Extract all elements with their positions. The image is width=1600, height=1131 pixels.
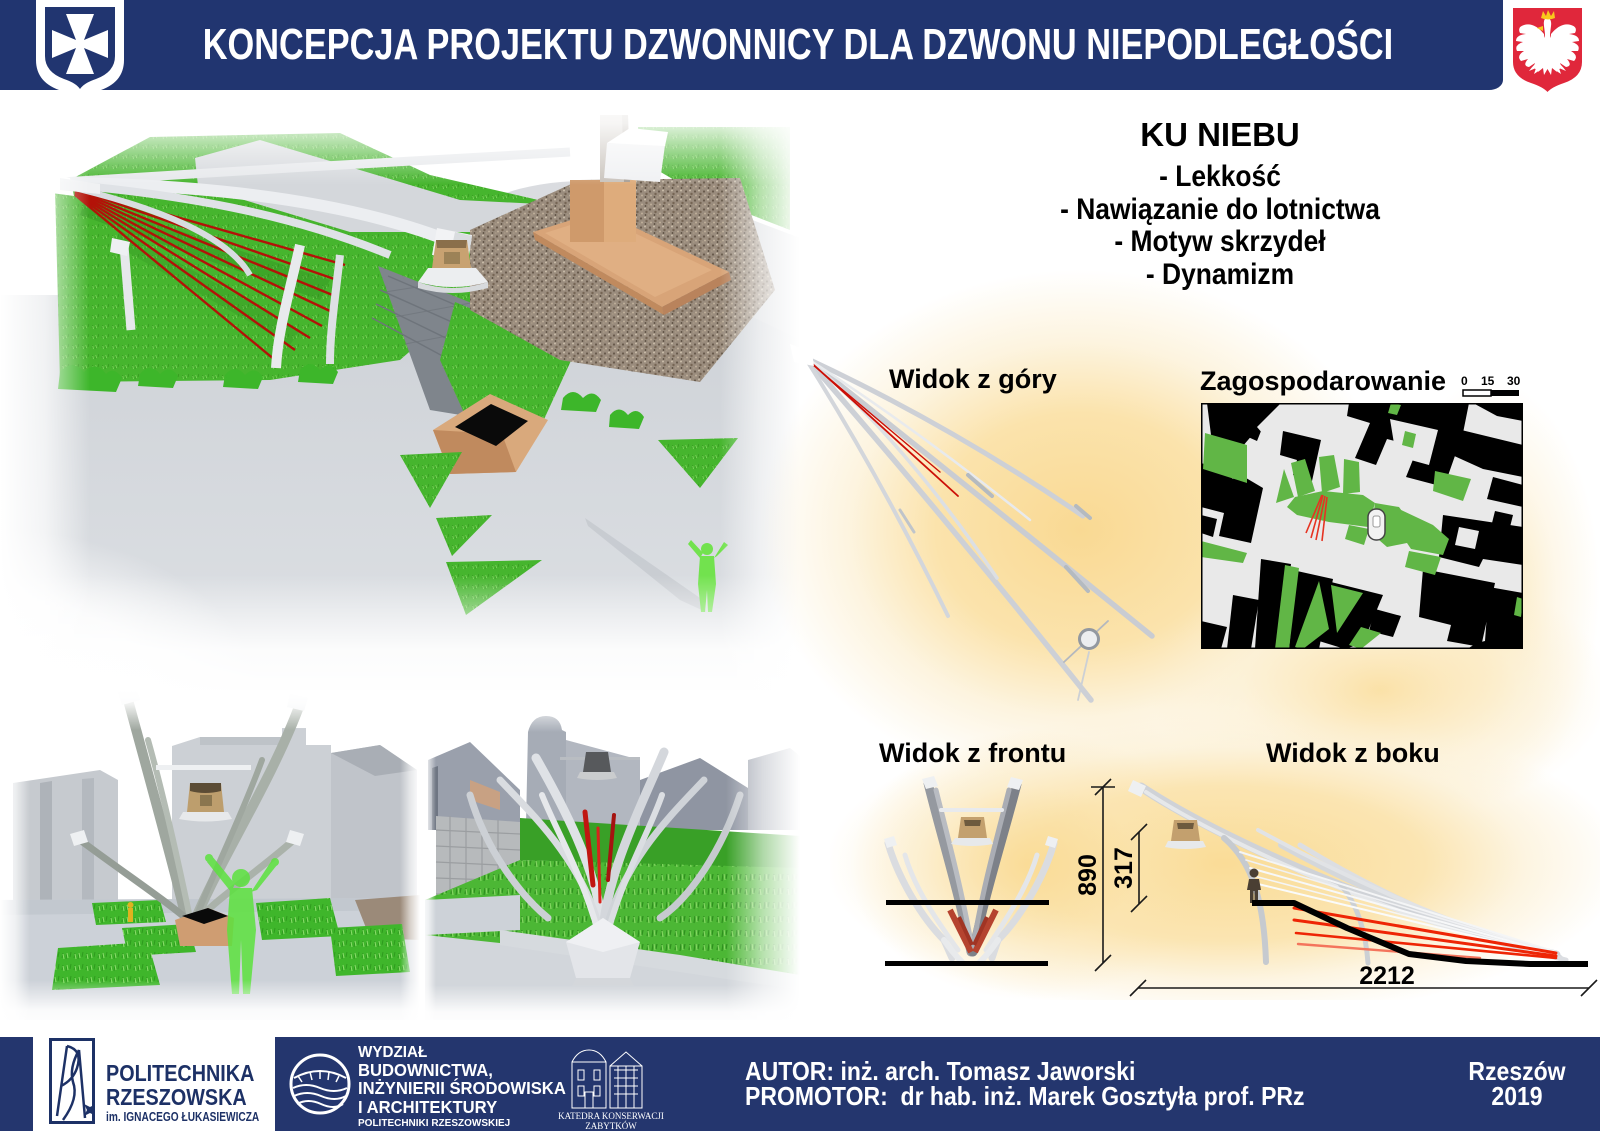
svg-text:15: 15 <box>1481 375 1495 388</box>
svg-text:0: 0 <box>1461 375 1468 388</box>
svg-text:2212: 2212 <box>1359 962 1415 990</box>
svg-text:30: 30 <box>1507 375 1521 388</box>
svg-text:890: 890 <box>1074 854 1102 896</box>
